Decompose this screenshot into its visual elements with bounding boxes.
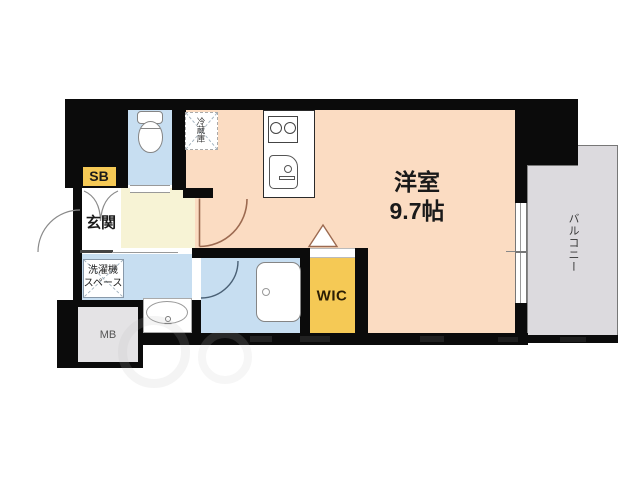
washer-space-label: 洗濯機 スペース [84, 264, 123, 290]
wic-folding-door [310, 248, 355, 258]
toilet-seat-line [141, 128, 160, 129]
main-room-label: 洋室 9.7帖 [390, 168, 445, 226]
main-room-floor-upper [186, 110, 515, 248]
toilet-bowl [138, 121, 163, 153]
watermark [300, 336, 330, 342]
wall [172, 99, 186, 190]
watermark [498, 337, 518, 342]
stove-burner [270, 122, 282, 134]
wall [192, 248, 310, 258]
wall [355, 248, 368, 345]
wall [192, 300, 201, 333]
window-divider [516, 251, 526, 253]
sliding-door-leaf [80, 250, 113, 253]
main-room-size: 9.7帖 [390, 197, 445, 226]
washer-space-line2: スペース [84, 277, 123, 290]
bathroom-door-opening [192, 258, 201, 300]
watermark [118, 316, 190, 388]
window-tick [506, 251, 515, 252]
balcony-floor-right [578, 145, 618, 335]
wic-label: WIC [317, 288, 348, 305]
floor-plan: 洋室 9.7帖 バルコニー WIC 玄関 SB MB 冷蔵庫 洗濯機 スペース [0, 0, 640, 480]
stove-burner [284, 122, 296, 134]
watermark [420, 336, 444, 342]
sliding-door-track [112, 252, 178, 253]
tub-drain [262, 288, 270, 296]
wall [65, 99, 578, 110]
wall [300, 248, 310, 345]
shoe-box-label: SB [89, 168, 108, 184]
watermark [198, 330, 252, 384]
wall [515, 110, 527, 203]
window-center-rail [520, 203, 521, 303]
main-room-floor-lower [368, 248, 515, 333]
watermark [250, 336, 272, 342]
wall [515, 303, 527, 333]
sink-drain [284, 165, 292, 173]
wall [183, 188, 213, 198]
main-room-name: 洋室 [390, 168, 445, 197]
watermark [560, 337, 586, 342]
toilet-door [130, 185, 170, 193]
meter-box-label: MB [100, 329, 117, 341]
refrigerator-label: 冷蔵庫 [195, 117, 207, 143]
sink-faucet [279, 176, 295, 180]
balcony-label: バルコニー [565, 213, 581, 273]
wall [73, 188, 82, 305]
genkan-label: 玄関 [86, 212, 116, 233]
washer-space-line1: 洗濯機 [84, 264, 123, 277]
balcony-window [515, 203, 527, 303]
kitchen-sink [269, 155, 298, 189]
